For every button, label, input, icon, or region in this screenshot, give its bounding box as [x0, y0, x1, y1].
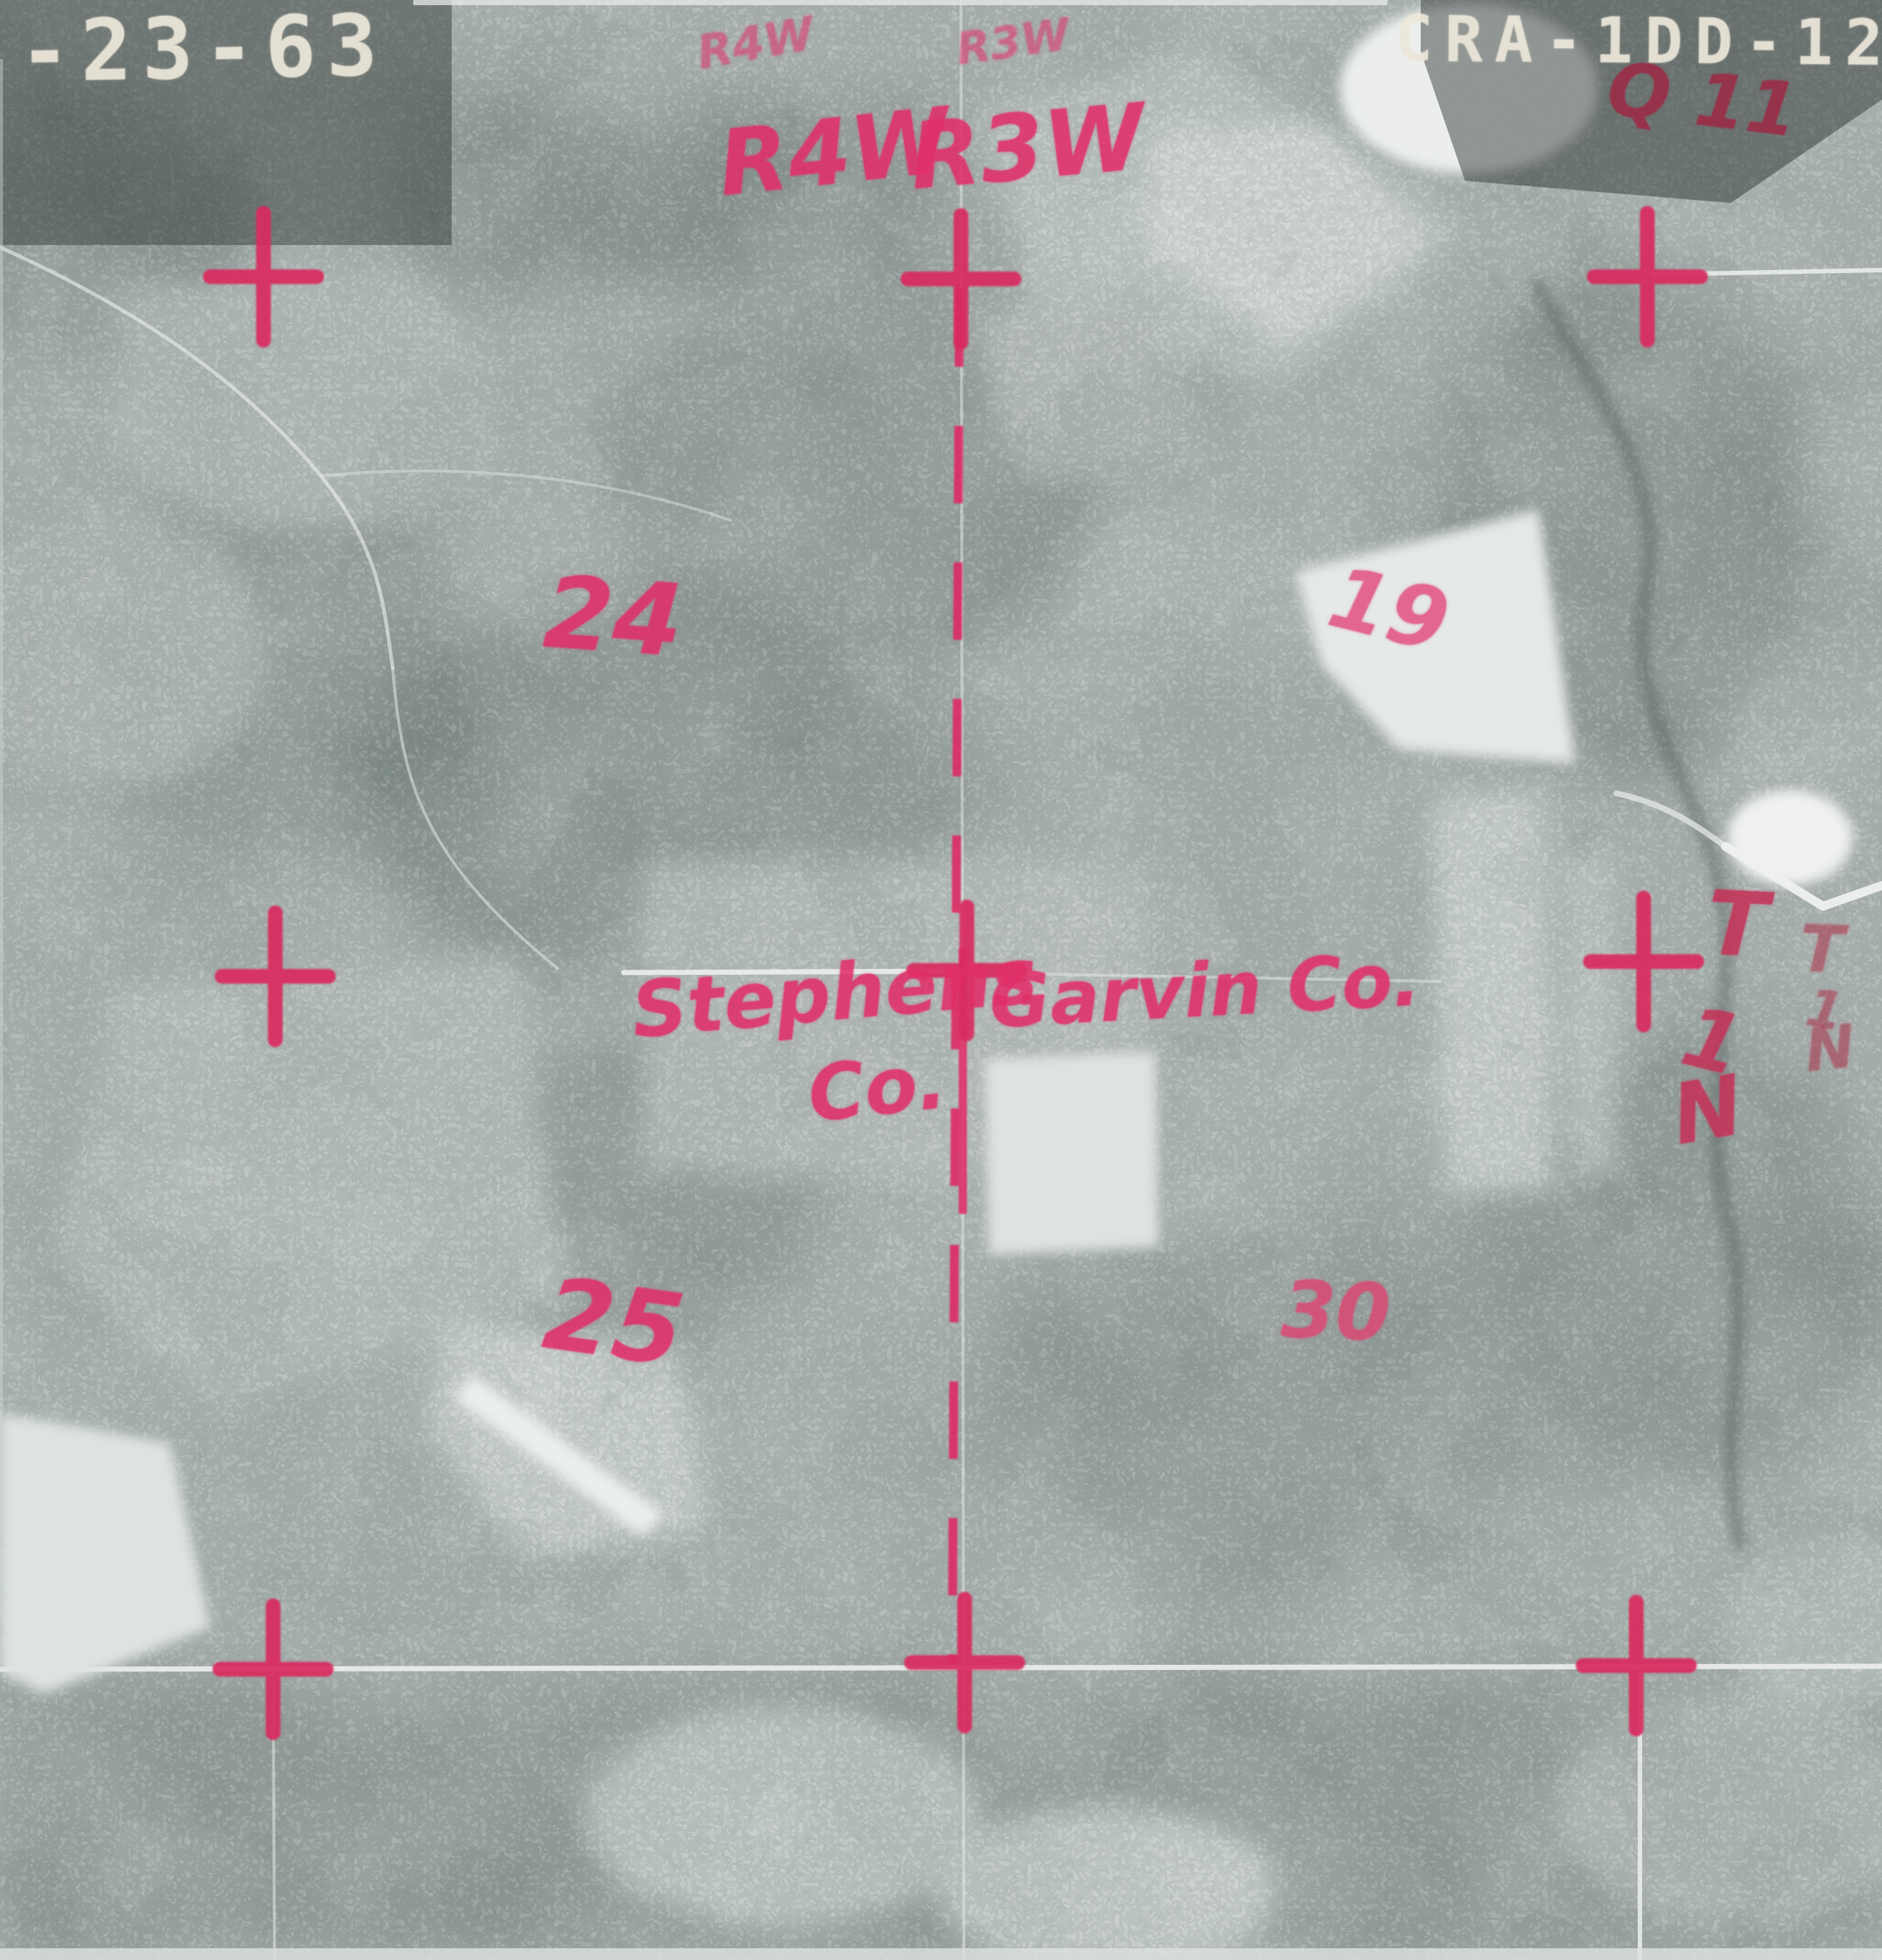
township-label-n-faint: N — [1802, 1017, 1858, 1081]
survey-cross-top-center — [900, 208, 1021, 350]
section-number-25: 25 — [538, 1263, 689, 1381]
survey-cross-middle-left — [215, 905, 336, 1047]
survey-cross-top-right — [1587, 206, 1708, 348]
survey-cross-middle-right — [1583, 891, 1704, 1032]
survey-cross-top-left — [203, 206, 324, 348]
section-number-24: 24 — [541, 562, 686, 672]
township-label-n: N — [1666, 1064, 1749, 1158]
survey-cross-bottom-left — [213, 1598, 334, 1740]
date-stamp: -23-63 — [18, 4, 388, 95]
section-number-30: 30 — [1280, 1271, 1391, 1353]
aerial-photo-sheet: -23-63 CRA-1DD-127 Q 11 R4W R3W R4W R3W … — [0, 0, 1882, 1960]
survey-cross-bottom-right — [1576, 1595, 1697, 1736]
range-label-r3w: R3W — [906, 92, 1148, 203]
county-label-stephens-co: Co. — [804, 1042, 950, 1133]
survey-cross-bottom-center — [904, 1592, 1025, 1733]
township-label-t: T — [1705, 880, 1770, 971]
township-label-t-faint: T — [1799, 917, 1845, 983]
q-number-note: Q 11 — [1604, 52, 1802, 148]
section-number-19: 19 — [1321, 555, 1456, 666]
county-label-garvin: Garvin Co. — [987, 942, 1422, 1038]
